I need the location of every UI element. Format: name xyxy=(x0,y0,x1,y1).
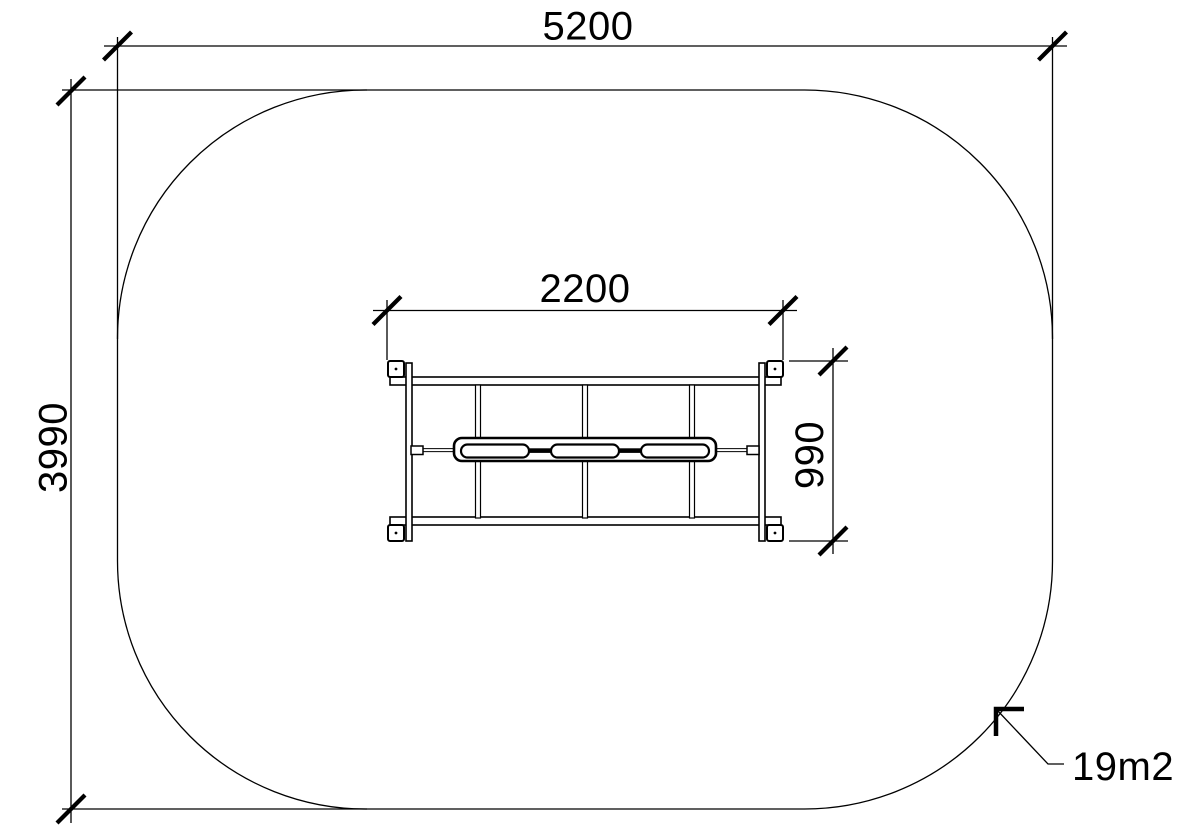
beam-connector-left xyxy=(529,448,551,453)
beam-seat-right xyxy=(641,445,709,458)
dimension-label-equipment-width: 2200 xyxy=(540,267,631,311)
beam-connector-right xyxy=(619,448,641,453)
equipment-top-rail xyxy=(390,377,781,385)
plan-drawing-canvas: 5200 3990 2200 990 xyxy=(0,0,1188,840)
post-center-dot xyxy=(774,368,777,371)
dimension-area-height: 3990 xyxy=(32,77,86,823)
equipment-center-beam xyxy=(454,438,716,461)
dimension-label-area-height: 3990 xyxy=(32,402,76,493)
surface-area-label: 19m2 xyxy=(1072,745,1174,789)
beam-seat-left xyxy=(461,445,529,458)
area-annotation: 19m2 xyxy=(996,709,1174,789)
equipment-right-rail xyxy=(759,363,765,541)
dimension-label-area-width: 5200 xyxy=(543,5,634,49)
rod-fitting-right xyxy=(747,446,759,455)
dimension-equipment-width: 2200 xyxy=(373,267,797,360)
equipment-plan xyxy=(388,361,783,541)
post-center-dot xyxy=(774,532,777,535)
rod-fitting-left xyxy=(411,446,423,455)
extension-lines-area xyxy=(62,37,1053,809)
dimension-label-equipment-height: 990 xyxy=(788,421,832,489)
dimension-equipment-height: 990 xyxy=(788,347,848,555)
post-center-dot xyxy=(395,368,398,371)
leader-line xyxy=(997,710,1064,764)
equipment-post-bottom-right xyxy=(767,525,783,541)
equipment-post-top-right xyxy=(767,361,783,377)
drawing-page: 5200 3990 2200 990 xyxy=(0,0,1188,840)
equipment-post-top-left xyxy=(388,361,404,377)
beam-seat-middle xyxy=(551,445,619,458)
post-center-dot xyxy=(395,532,398,535)
equipment-post-bottom-left xyxy=(388,525,404,541)
dimension-area-width: 5200 xyxy=(104,5,1068,61)
